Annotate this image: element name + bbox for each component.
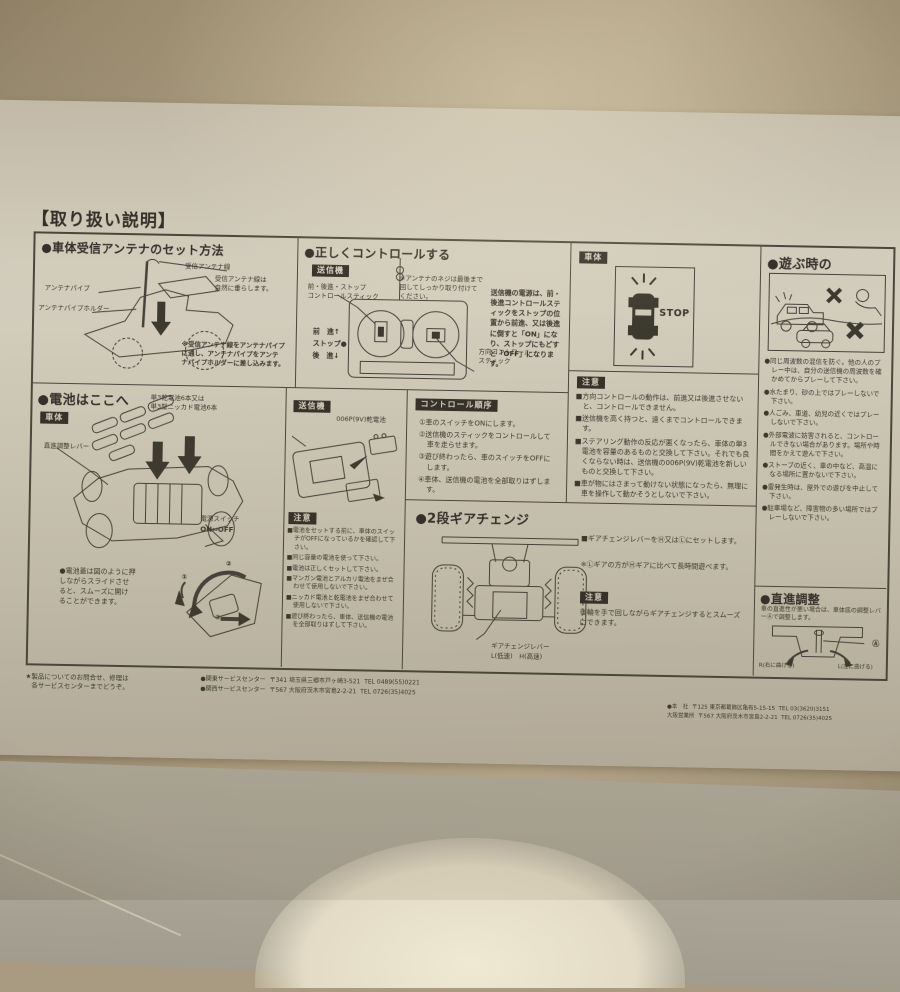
service-center-addr: 〒341 埼玉県三郷市戸ヶ崎3-521	[269, 677, 360, 686]
play-item: ●駐車場など、障害物の多い場所ではプレーしないで下さい。	[761, 504, 882, 525]
company-name: ●本 社	[667, 704, 688, 710]
footer-company: ●本 社 〒125 東京都葛飾区亀有5-15-15 TEL 03(3620)31…	[667, 704, 887, 725]
step-1: ①	[181, 572, 187, 582]
caution-item: ■遊び終わったら、車体、送信機の電池を全部取りはずして下さい。	[285, 613, 397, 632]
section-play: ●遊ぶ時の ●同じ周波数の混信を防ぐ。他の	[754, 247, 892, 589]
section-straight: ●直進調整 車の直進性が悪い場合は、車体底の調整レバーⒶで調整します。 Ⓐ R(…	[753, 587, 886, 678]
stop-label: STOP	[659, 308, 690, 320]
caution-item: ■電池をセットする前に、車体のスイッチがOFFになっているかを確認して下さい。	[287, 527, 399, 554]
caution-tag: 注意	[288, 512, 316, 524]
section-stop: 車体 STOP	[568, 243, 760, 374]
footer-inquiry-line: 各サービスセンターまでどうぞ。	[25, 681, 185, 693]
caution-tag: 注意	[577, 376, 605, 388]
sequence-item: ①車のスイッチをONにします。	[419, 417, 557, 430]
turn-right-label: R(右に曲げる)	[759, 663, 795, 672]
footer-service-centers: ●関東サービスセンター 〒341 埼玉県三郷市戸ヶ崎3-521 TEL 0489…	[200, 675, 530, 700]
caution-item: ■同じ容量の電池を使って下さい。	[287, 554, 399, 564]
caution-tag: 注意	[580, 591, 608, 603]
on-off-label: ON⇔OFF	[200, 524, 233, 535]
transmitter-diagram	[336, 257, 488, 388]
caution-item: ■ステアリング動作の反応が悪くなったら、車体の単3電池を容量のあるものと交換して…	[574, 436, 752, 480]
company-addr: 〒125 東京都葛飾区亀有5-15-15	[692, 704, 775, 712]
caution-item: ■電池は正しくセットして下さい。	[286, 565, 398, 575]
sequence-item: ④車体、送信機の電池を全部取りはずします。	[418, 474, 556, 497]
sequence-tag: コントロール順序	[415, 398, 497, 411]
straight-diagram	[766, 624, 875, 666]
body-tag: 車体	[40, 411, 68, 423]
adjust-lever-a: Ⓐ	[872, 639, 879, 649]
gear-caution: 後輪を手で回しながらギアチェンジするとスムーズにできます。	[579, 607, 744, 630]
footer-inquiry: ★製品についてのお問合せ、修理は 各サービスセンターまでどうぞ。	[25, 672, 185, 693]
gear-item: ■ギアチェンジレバーをⒽ又はⓁにセットします。	[581, 533, 753, 546]
label-receive-wire: 受信アンテナ線	[185, 262, 230, 272]
service-center-name: ●関西サービスセンター	[200, 686, 265, 694]
caution-item: ■マンガン電池とアルカリ電池をまぜ合わせて使用しないで下さい。	[286, 575, 398, 594]
play-item: ●人ごみ、車道、幼児の近くではプレーしないで下さい。	[763, 409, 884, 430]
gear-lever-sub: L(低速) H(高速)	[491, 652, 542, 662]
caution-list: ■方向コントロールの動作は、前進又は後進させないと、コントロールできません。 ■…	[574, 391, 753, 504]
body-tag: 車体	[579, 251, 607, 263]
gear-lever-label: ギアチェンジレバー	[491, 642, 550, 652]
service-center-name: ●関東サービスセンター	[200, 675, 265, 683]
section-title: ●遊ぶ時の	[767, 253, 832, 273]
battery-caution-list: ■電池をセットする前に、車体のスイッチがOFFになっているかを確認して下さい。 …	[285, 527, 399, 633]
section-gear: ●2段ギアチェンジ ギアチェンジレバー L(低速) H(高速) ■	[403, 500, 756, 675]
power-switch-label: 電源スイッチ	[200, 514, 239, 524]
section-caution-control: 注意 ■方向コントロールの動作は、前進又は後進させないと、コントロールできません…	[566, 371, 758, 506]
tx-battery-diagram	[289, 422, 405, 508]
section-control: ●正しくコントロールする 送信機 前・後進・ストップ コントロールスティック ※…	[296, 238, 571, 393]
battery-lid-diagram	[158, 554, 272, 644]
company-addr: 〒567 大阪府茨木市宮島2-2-21	[698, 714, 778, 721]
caution-item: ■車が物にはさまって動けない状態になったら、無理に車を操作して動かそうとしないで…	[574, 478, 751, 502]
play-item: ●ストーブの近く、車の中など、高温になる場所に置かないで下さい。	[762, 461, 883, 482]
manual-main-box: ●車体受信アンテナのセット方法 受信アンテナ線 受信アンテナ線は 自然に垂らしま…	[26, 231, 896, 681]
section-battery: ●電池はここへ 車体 単3乾電池6本又は 単3型ニッカド電池6本	[28, 383, 408, 668]
label-pipe-holder: アンテナパイプホルダー	[38, 303, 109, 314]
label-wire-note: 受信アンテナ線は 自然に垂らします。	[215, 275, 273, 294]
turn-left-label: L(左に曲げる)	[838, 664, 873, 673]
company-tel: TEL 0726(35)4025	[781, 715, 832, 722]
gear-item: ※Ⓛギアの方がⒽギアに比べて長時間遊べます。	[581, 559, 753, 572]
caution-item: ■送信機を高く持つと、遠くまでコントロールできます。	[575, 414, 752, 438]
straight-paragraph: 車の直進性が悪い場合は、車体底の調整レバーⒶで調整します。	[761, 606, 882, 625]
lid-note: ●電池蓋は図のように押 しながらスライドさせ ると、スムーズに開け ることができ…	[59, 566, 136, 608]
section-sequence: コントロール順序 ①車のスイッチをONにします。 ②送信機のスティックをコントロ…	[406, 390, 568, 503]
company-name: 大阪営業所	[667, 713, 695, 720]
sequence-item: ②送信機のスティックをコントロールして車を走らせます。	[419, 430, 557, 453]
step-2: ②	[226, 559, 232, 569]
play-illustration	[769, 274, 885, 352]
instruction-sheet: 【取り扱い説明】 ●車体受信アンテナのセット方法 受信アンテナ線 受信アンテナ線…	[0, 99, 900, 771]
transmitter-tag: 送信機	[293, 400, 330, 412]
play-item: ●雷発生時は、屋外での遊びを中止して下さい。	[762, 482, 883, 503]
antenna-note: ※受信アンテナ線をアンテナパイプ に通し、アンテナパイプをアンテ ナパイプホルダ…	[181, 340, 285, 370]
company-tel: TEL 03(3620)3151	[779, 706, 830, 713]
service-center-addr: 〒567 大阪府茨木市宮島2-2-21	[269, 687, 356, 696]
sequence-item: ③遊び終わったら、車のスイッチをOFFにします。	[418, 452, 556, 475]
service-center-tel: TEL 0489(55)0221	[364, 678, 420, 686]
section-antenna: ●車体受信アンテナのセット方法 受信アンテナ線 受信アンテナ線は 自然に垂らしま…	[33, 233, 299, 388]
caution-item: ■ニッカド電池と乾電池をまぜ合わせて使用しないで下さい。	[286, 594, 398, 613]
play-illustration-frame	[768, 273, 886, 353]
straight-lever-label: 直進調整レバー	[44, 442, 90, 452]
gear-rear-diagram	[428, 529, 590, 644]
caution-item: ■方向コントロールの動作は、前進又は後進させないと、コントロールできません。	[575, 391, 752, 415]
play-item: ●外部電波に妨害されると、コントロールできない場合があります。場所や時間をかえて…	[763, 430, 884, 460]
step-3: ③	[215, 613, 221, 623]
stop-inner-box: STOP	[613, 266, 695, 367]
section-title: ●2段ギアチェンジ	[415, 507, 529, 528]
service-center-tel: TEL 0726(35)4025	[360, 689, 416, 697]
play-item: ●水たまり、砂の上ではプレーしないで下さい。	[764, 387, 885, 408]
sequence-list: ①車のスイッチをONにします。 ②送信機のスティックをコントロールして車を走らせ…	[418, 417, 557, 498]
label-antenna-pipe: アンテナパイプ	[45, 284, 90, 294]
play-list: ●同じ周波数の混信を防ぐ。他の人のプレー中は、自分の送信機の周波数を確かめてから…	[761, 357, 885, 528]
page-title: 【取り扱い説明】	[32, 204, 176, 232]
play-item: ●同じ周波数の混信を防ぐ。他の人のプレー中は、自分の送信機の周波数を確かめてから…	[764, 357, 885, 387]
power-on-off-paragraph: 送信機の電源は、前・後進コントロールスティックをストップの位置から前進、又は後進…	[489, 288, 564, 370]
